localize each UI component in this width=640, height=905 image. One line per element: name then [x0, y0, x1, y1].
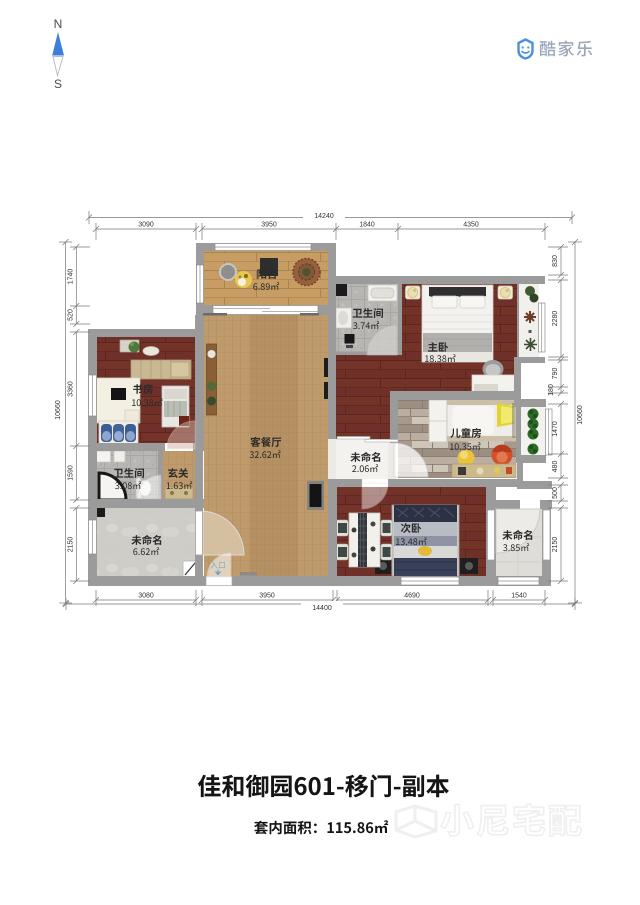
svg-text:2280: 2280: [552, 311, 559, 327]
svg-text:14400: 14400: [312, 605, 332, 612]
svg-text:480: 480: [552, 461, 559, 473]
svg-text:1540: 1540: [511, 593, 527, 600]
svg-text:3080: 3080: [138, 593, 154, 600]
svg-text:790: 790: [552, 368, 559, 380]
svg-text:4690: 4690: [404, 593, 420, 600]
svg-text:3950: 3950: [259, 593, 275, 600]
svg-text:14240: 14240: [314, 213, 334, 220]
svg-text:10660: 10660: [55, 400, 62, 420]
svg-text:S: S: [54, 77, 62, 91]
svg-text:1740: 1740: [68, 269, 75, 285]
svg-text:500: 500: [552, 487, 559, 499]
svg-text:3950: 3950: [261, 222, 277, 229]
svg-text:1590: 1590: [68, 465, 75, 481]
svg-text:1470: 1470: [552, 421, 559, 437]
svg-text:520: 520: [68, 309, 75, 321]
svg-text:2150: 2150: [552, 537, 559, 553]
svg-text:10660: 10660: [577, 405, 584, 425]
svg-text:4350: 4350: [463, 222, 479, 229]
svg-text:N: N: [54, 17, 63, 31]
svg-text:3090: 3090: [138, 222, 154, 229]
svg-text:830: 830: [552, 255, 559, 267]
svg-text:2150: 2150: [68, 537, 75, 553]
svg-text:180: 180: [548, 384, 555, 396]
svg-text:1840: 1840: [359, 222, 375, 229]
svg-text:3360: 3360: [68, 381, 75, 397]
